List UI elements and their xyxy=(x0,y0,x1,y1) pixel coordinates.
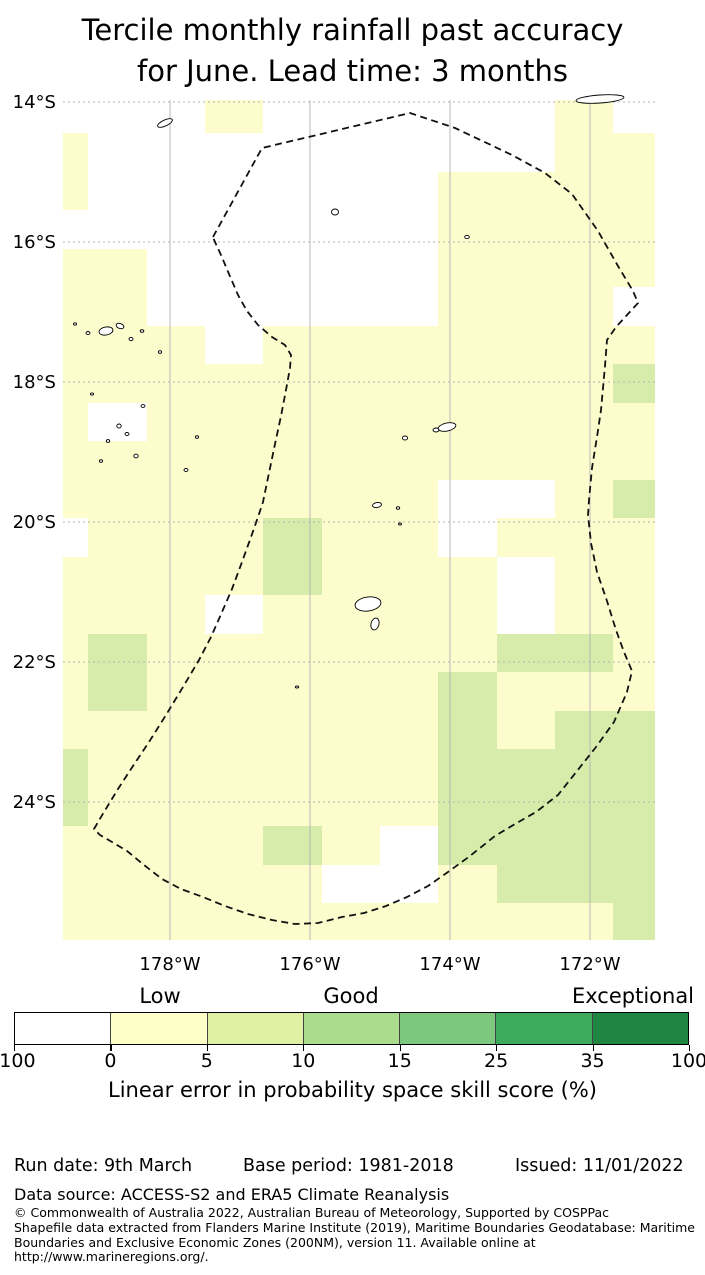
map-cell xyxy=(497,903,555,940)
map-cell xyxy=(613,133,655,172)
map-cell xyxy=(613,634,655,672)
map-cell xyxy=(555,903,613,940)
island-outline xyxy=(140,330,144,333)
map-cell xyxy=(205,441,263,480)
map-cell xyxy=(438,403,497,441)
map-cell xyxy=(555,865,613,903)
island-outline xyxy=(129,337,133,340)
map-cell xyxy=(555,557,613,595)
map-cell xyxy=(438,326,497,364)
map-cell xyxy=(63,133,88,172)
island-outline xyxy=(156,117,173,129)
map-cell xyxy=(555,172,613,210)
map-cell xyxy=(380,518,438,557)
map-cell xyxy=(63,672,88,711)
map-cell xyxy=(555,749,613,788)
map-cell xyxy=(205,634,263,672)
map-cell xyxy=(63,326,88,364)
map-cell xyxy=(613,557,655,595)
island-outline xyxy=(295,686,298,688)
island-outline xyxy=(141,405,145,408)
map-cell xyxy=(613,788,655,826)
map-cell xyxy=(380,749,438,788)
island-outline xyxy=(465,235,470,238)
map-cell xyxy=(613,210,655,249)
map-cell xyxy=(205,557,263,595)
map-cell xyxy=(263,711,322,749)
map-cell xyxy=(88,865,147,903)
map-cell xyxy=(322,634,380,672)
map-cell xyxy=(613,403,655,441)
map-cell xyxy=(88,672,147,711)
map-cell xyxy=(322,557,380,595)
data-source-text: Data source: ACCESS-S2 and ERA5 Climate … xyxy=(14,1185,449,1204)
map-cell xyxy=(263,903,322,940)
island-outline xyxy=(576,93,624,104)
map-cell xyxy=(263,826,322,865)
map-cell xyxy=(205,826,263,865)
map-cell xyxy=(555,826,613,865)
map-cell xyxy=(613,903,655,940)
map-cell xyxy=(147,403,205,441)
map-cell xyxy=(88,480,147,518)
map-cell xyxy=(147,903,205,940)
map-cell xyxy=(613,865,655,903)
map-cell xyxy=(88,788,147,826)
map-cell xyxy=(613,518,655,557)
map-cell xyxy=(263,480,322,518)
map-cell xyxy=(205,518,263,557)
map-cell xyxy=(555,595,613,634)
colorbar-segment xyxy=(15,1013,110,1044)
map-cell xyxy=(263,865,322,903)
map-cell xyxy=(497,441,555,480)
island-outline xyxy=(399,523,402,525)
map-cell xyxy=(555,249,613,287)
map-cell xyxy=(322,749,380,788)
map-cell xyxy=(263,634,322,672)
map-cell xyxy=(88,634,147,672)
map-cell xyxy=(555,788,613,826)
map-cell xyxy=(88,749,147,788)
map-cell xyxy=(497,826,555,865)
colorbar-tick-label: 25 xyxy=(484,1050,508,1072)
map-cell xyxy=(380,364,438,403)
island-outline xyxy=(402,436,407,440)
map-cell xyxy=(322,518,380,557)
map-cell xyxy=(147,826,205,865)
map-cell xyxy=(613,672,655,711)
map-cell xyxy=(438,903,497,940)
map-cell xyxy=(63,249,88,287)
island-outline xyxy=(117,424,121,428)
map-cell xyxy=(263,749,322,788)
map-cell xyxy=(438,672,497,711)
map-cell xyxy=(438,210,497,249)
map-cell xyxy=(438,595,497,634)
map-cell xyxy=(205,865,263,903)
island-outline xyxy=(332,209,339,215)
map-cell xyxy=(63,903,88,940)
colorbar-category-label: Low xyxy=(139,984,180,1008)
map-cell xyxy=(322,403,380,441)
colorbar-segment xyxy=(303,1013,399,1044)
map-cell xyxy=(497,364,555,403)
colorbar-segment xyxy=(399,1013,495,1044)
map-cell xyxy=(380,634,438,672)
longitude-tick-label: 172°W xyxy=(559,954,620,975)
map-cell xyxy=(555,518,613,557)
map-cell xyxy=(205,672,263,711)
map-cell xyxy=(438,249,497,287)
map-cell xyxy=(438,865,497,903)
map-cell xyxy=(497,672,555,711)
map-cell xyxy=(63,287,88,326)
map-cell xyxy=(88,557,147,595)
map-cell xyxy=(147,865,205,903)
island-outline xyxy=(125,433,129,436)
map-cell xyxy=(380,711,438,749)
map-cell xyxy=(497,326,555,364)
map-cell xyxy=(147,480,205,518)
map-cell xyxy=(613,326,655,364)
map-cell xyxy=(147,595,205,634)
map-cell xyxy=(380,903,438,940)
map-cell xyxy=(380,403,438,441)
map-cell xyxy=(322,441,380,480)
map-cell xyxy=(497,865,555,903)
longitude-tick-label: 174°W xyxy=(419,954,480,975)
map-cell xyxy=(497,403,555,441)
map-cell xyxy=(555,711,613,749)
colorbar-segment xyxy=(110,1013,206,1044)
map-cell xyxy=(555,287,613,326)
longitude-tick-label: 178°W xyxy=(139,954,200,975)
map-cell xyxy=(322,903,380,940)
base-period-text: Base period: 1981-2018 xyxy=(243,1156,454,1176)
latitude-tick-label: 18°S xyxy=(13,372,56,393)
map-cell xyxy=(438,364,497,403)
map-cell xyxy=(147,326,205,364)
map-cell xyxy=(613,364,655,403)
map-cell xyxy=(322,326,380,364)
map-cell xyxy=(147,557,205,595)
map-cell xyxy=(205,711,263,749)
map-cell xyxy=(88,518,147,557)
colorbar-tick-label: 35 xyxy=(580,1050,604,1072)
map-cell xyxy=(613,172,655,210)
map-cell xyxy=(613,441,655,480)
map-cell xyxy=(380,595,438,634)
map-cell xyxy=(497,210,555,249)
map-cell xyxy=(438,711,497,749)
map-cell xyxy=(438,557,497,595)
run-date-text: Run date: 9th March xyxy=(14,1156,192,1176)
colorbar-tick-label: -100 xyxy=(0,1050,36,1072)
latitude-tick-label: 22°S xyxy=(13,652,56,673)
colorbar-axis-label: Linear error in probability space skill … xyxy=(0,1078,705,1102)
map-cell xyxy=(63,749,88,788)
map-cell xyxy=(263,595,322,634)
copyright-line: http://www.marineregions.org/. xyxy=(14,1250,695,1265)
map-cell xyxy=(555,326,613,364)
colorbar xyxy=(14,1012,689,1045)
colorbar-category-label: Good xyxy=(323,984,378,1008)
island-outline xyxy=(184,469,188,472)
map-cell xyxy=(497,172,555,210)
map-cell xyxy=(63,826,88,865)
map-cell xyxy=(205,903,263,940)
map-cell xyxy=(497,518,555,557)
map-cell xyxy=(205,788,263,826)
map-cell xyxy=(497,788,555,826)
map-cell xyxy=(63,364,88,403)
map-cell xyxy=(147,788,205,826)
map-cell xyxy=(88,903,147,940)
island-outline xyxy=(99,460,102,463)
longitude-tick-label: 176°W xyxy=(279,954,340,975)
island-outline xyxy=(433,428,439,432)
map-cell xyxy=(497,249,555,287)
map-cell xyxy=(263,788,322,826)
island-outline xyxy=(90,393,93,395)
map-cell xyxy=(263,672,322,711)
map-cell xyxy=(613,749,655,788)
map-cell xyxy=(380,672,438,711)
island-outline xyxy=(396,507,399,510)
map-cell xyxy=(63,172,88,210)
colorbar-tick-label: 10 xyxy=(291,1050,315,1072)
map-cell xyxy=(555,634,613,672)
map-cell xyxy=(438,826,497,865)
island-outline xyxy=(106,440,109,443)
map-cell xyxy=(263,326,322,364)
map-cell xyxy=(438,441,497,480)
map-cell xyxy=(555,100,613,133)
map-cell xyxy=(380,441,438,480)
latitude-tick-label: 14°S xyxy=(13,92,56,113)
map-cell xyxy=(555,441,613,480)
map-cell xyxy=(438,634,497,672)
island-outline xyxy=(158,351,161,354)
map-cell xyxy=(322,672,380,711)
copyright-line: Boundaries and Exclusive Economic Zones … xyxy=(14,1236,695,1251)
map-cell xyxy=(555,672,613,711)
map-cell xyxy=(88,595,147,634)
colorbar-tick-label: 100 xyxy=(671,1050,705,1072)
map-cell xyxy=(263,441,322,480)
map-cell xyxy=(438,749,497,788)
map-cell xyxy=(147,749,205,788)
map-cell xyxy=(263,403,322,441)
island-outline xyxy=(195,436,198,439)
map-cell xyxy=(205,100,263,133)
map-cell xyxy=(497,287,555,326)
island-outline xyxy=(86,332,90,335)
map-cell xyxy=(205,480,263,518)
colorbar-segment xyxy=(495,1013,591,1044)
map-cell xyxy=(63,788,88,826)
map-cell xyxy=(63,865,88,903)
map-cell xyxy=(205,364,263,403)
map-cell xyxy=(380,788,438,826)
map-cell xyxy=(63,595,88,634)
map-cell xyxy=(555,133,613,172)
map-cell xyxy=(322,480,380,518)
map-cell xyxy=(88,287,147,326)
copyright-block: © Commonwealth of Australia 2022, Austra… xyxy=(14,1206,695,1265)
map-cell xyxy=(63,403,88,441)
map-cell xyxy=(147,364,205,403)
map-cell xyxy=(63,441,88,480)
island-outline xyxy=(74,323,77,325)
issued-date-text: Issued: 11/01/2022 xyxy=(515,1156,684,1176)
copyright-line: © Commonwealth of Australia 2022, Austra… xyxy=(14,1206,695,1221)
map-cell xyxy=(147,634,205,672)
map-cell xyxy=(88,326,147,364)
colorbar-segment xyxy=(207,1013,303,1044)
copyright-line: Shapefile data extracted from Flanders M… xyxy=(14,1221,695,1236)
map-cell xyxy=(438,287,497,326)
colorbar-tick-label: 5 xyxy=(201,1050,213,1072)
map-cell xyxy=(205,749,263,788)
colorbar-tick-label: 15 xyxy=(388,1050,412,1072)
map-cell xyxy=(380,480,438,518)
map-cell xyxy=(380,557,438,595)
map-cell xyxy=(438,172,497,210)
map-cell xyxy=(555,403,613,441)
colorbar-category-label: Exceptional xyxy=(572,984,694,1008)
map-cell xyxy=(88,441,147,480)
map-cell xyxy=(322,826,380,865)
map-cell xyxy=(322,711,380,749)
map-cell xyxy=(497,634,555,672)
map-cell xyxy=(380,326,438,364)
map-cell xyxy=(613,711,655,749)
map-cell xyxy=(613,480,655,518)
map-cell xyxy=(205,403,263,441)
map-cell xyxy=(63,711,88,749)
map-cell xyxy=(88,711,147,749)
map-cell xyxy=(63,557,88,595)
map-cell xyxy=(63,480,88,518)
map-cell xyxy=(147,441,205,480)
map-cell xyxy=(263,557,322,595)
latitude-tick-label: 16°S xyxy=(13,232,56,253)
map-cell xyxy=(322,364,380,403)
map-cell xyxy=(555,480,613,518)
latitude-tick-label: 24°S xyxy=(13,792,56,813)
island-outline xyxy=(134,454,138,458)
map-cell xyxy=(322,788,380,826)
map-cell xyxy=(147,518,205,557)
map-cell xyxy=(613,595,655,634)
colorbar-segment xyxy=(592,1013,688,1044)
map-cell xyxy=(438,788,497,826)
map-cell xyxy=(497,749,555,788)
map-cell xyxy=(613,826,655,865)
latitude-tick-label: 20°S xyxy=(13,512,56,533)
map-cell xyxy=(263,364,322,403)
map-cell xyxy=(263,518,322,557)
map-cell xyxy=(497,711,555,749)
map-cell xyxy=(88,364,147,403)
map-cell xyxy=(88,249,147,287)
map-cell xyxy=(63,634,88,672)
colorbar-tick-label: 0 xyxy=(104,1050,116,1072)
map-cell xyxy=(147,672,205,711)
